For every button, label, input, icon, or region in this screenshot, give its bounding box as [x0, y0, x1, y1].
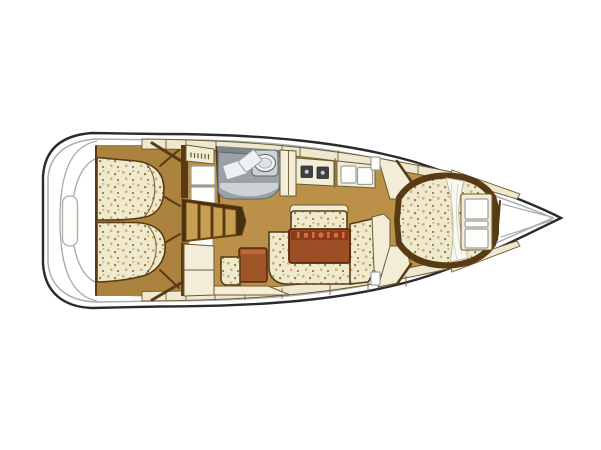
stove-burner-dot — [305, 170, 309, 174]
drawer-front — [465, 221, 488, 227]
drawer-front — [465, 199, 488, 219]
step-tread — [225, 209, 236, 236]
locker-door — [371, 272, 380, 285]
icebox-lid — [341, 166, 356, 183]
forward-drawers — [461, 194, 492, 250]
side-cushion — [221, 257, 240, 285]
stove-burner-dot — [321, 171, 325, 175]
locker-door — [191, 166, 215, 185]
icebox-lid — [358, 168, 373, 185]
boarding-ladder — [63, 196, 78, 246]
nav-stool-edge — [241, 250, 265, 254]
galley-cabinet — [280, 150, 296, 196]
floorplan-canvas — [0, 0, 601, 450]
step-tread — [200, 205, 211, 240]
locker-door — [371, 157, 380, 170]
drawer-front — [465, 229, 488, 248]
yacht-floorplan — [0, 0, 601, 450]
step-tread — [213, 207, 223, 238]
aft-berth-port — [97, 158, 164, 221]
step-tread — [186, 202, 198, 241]
